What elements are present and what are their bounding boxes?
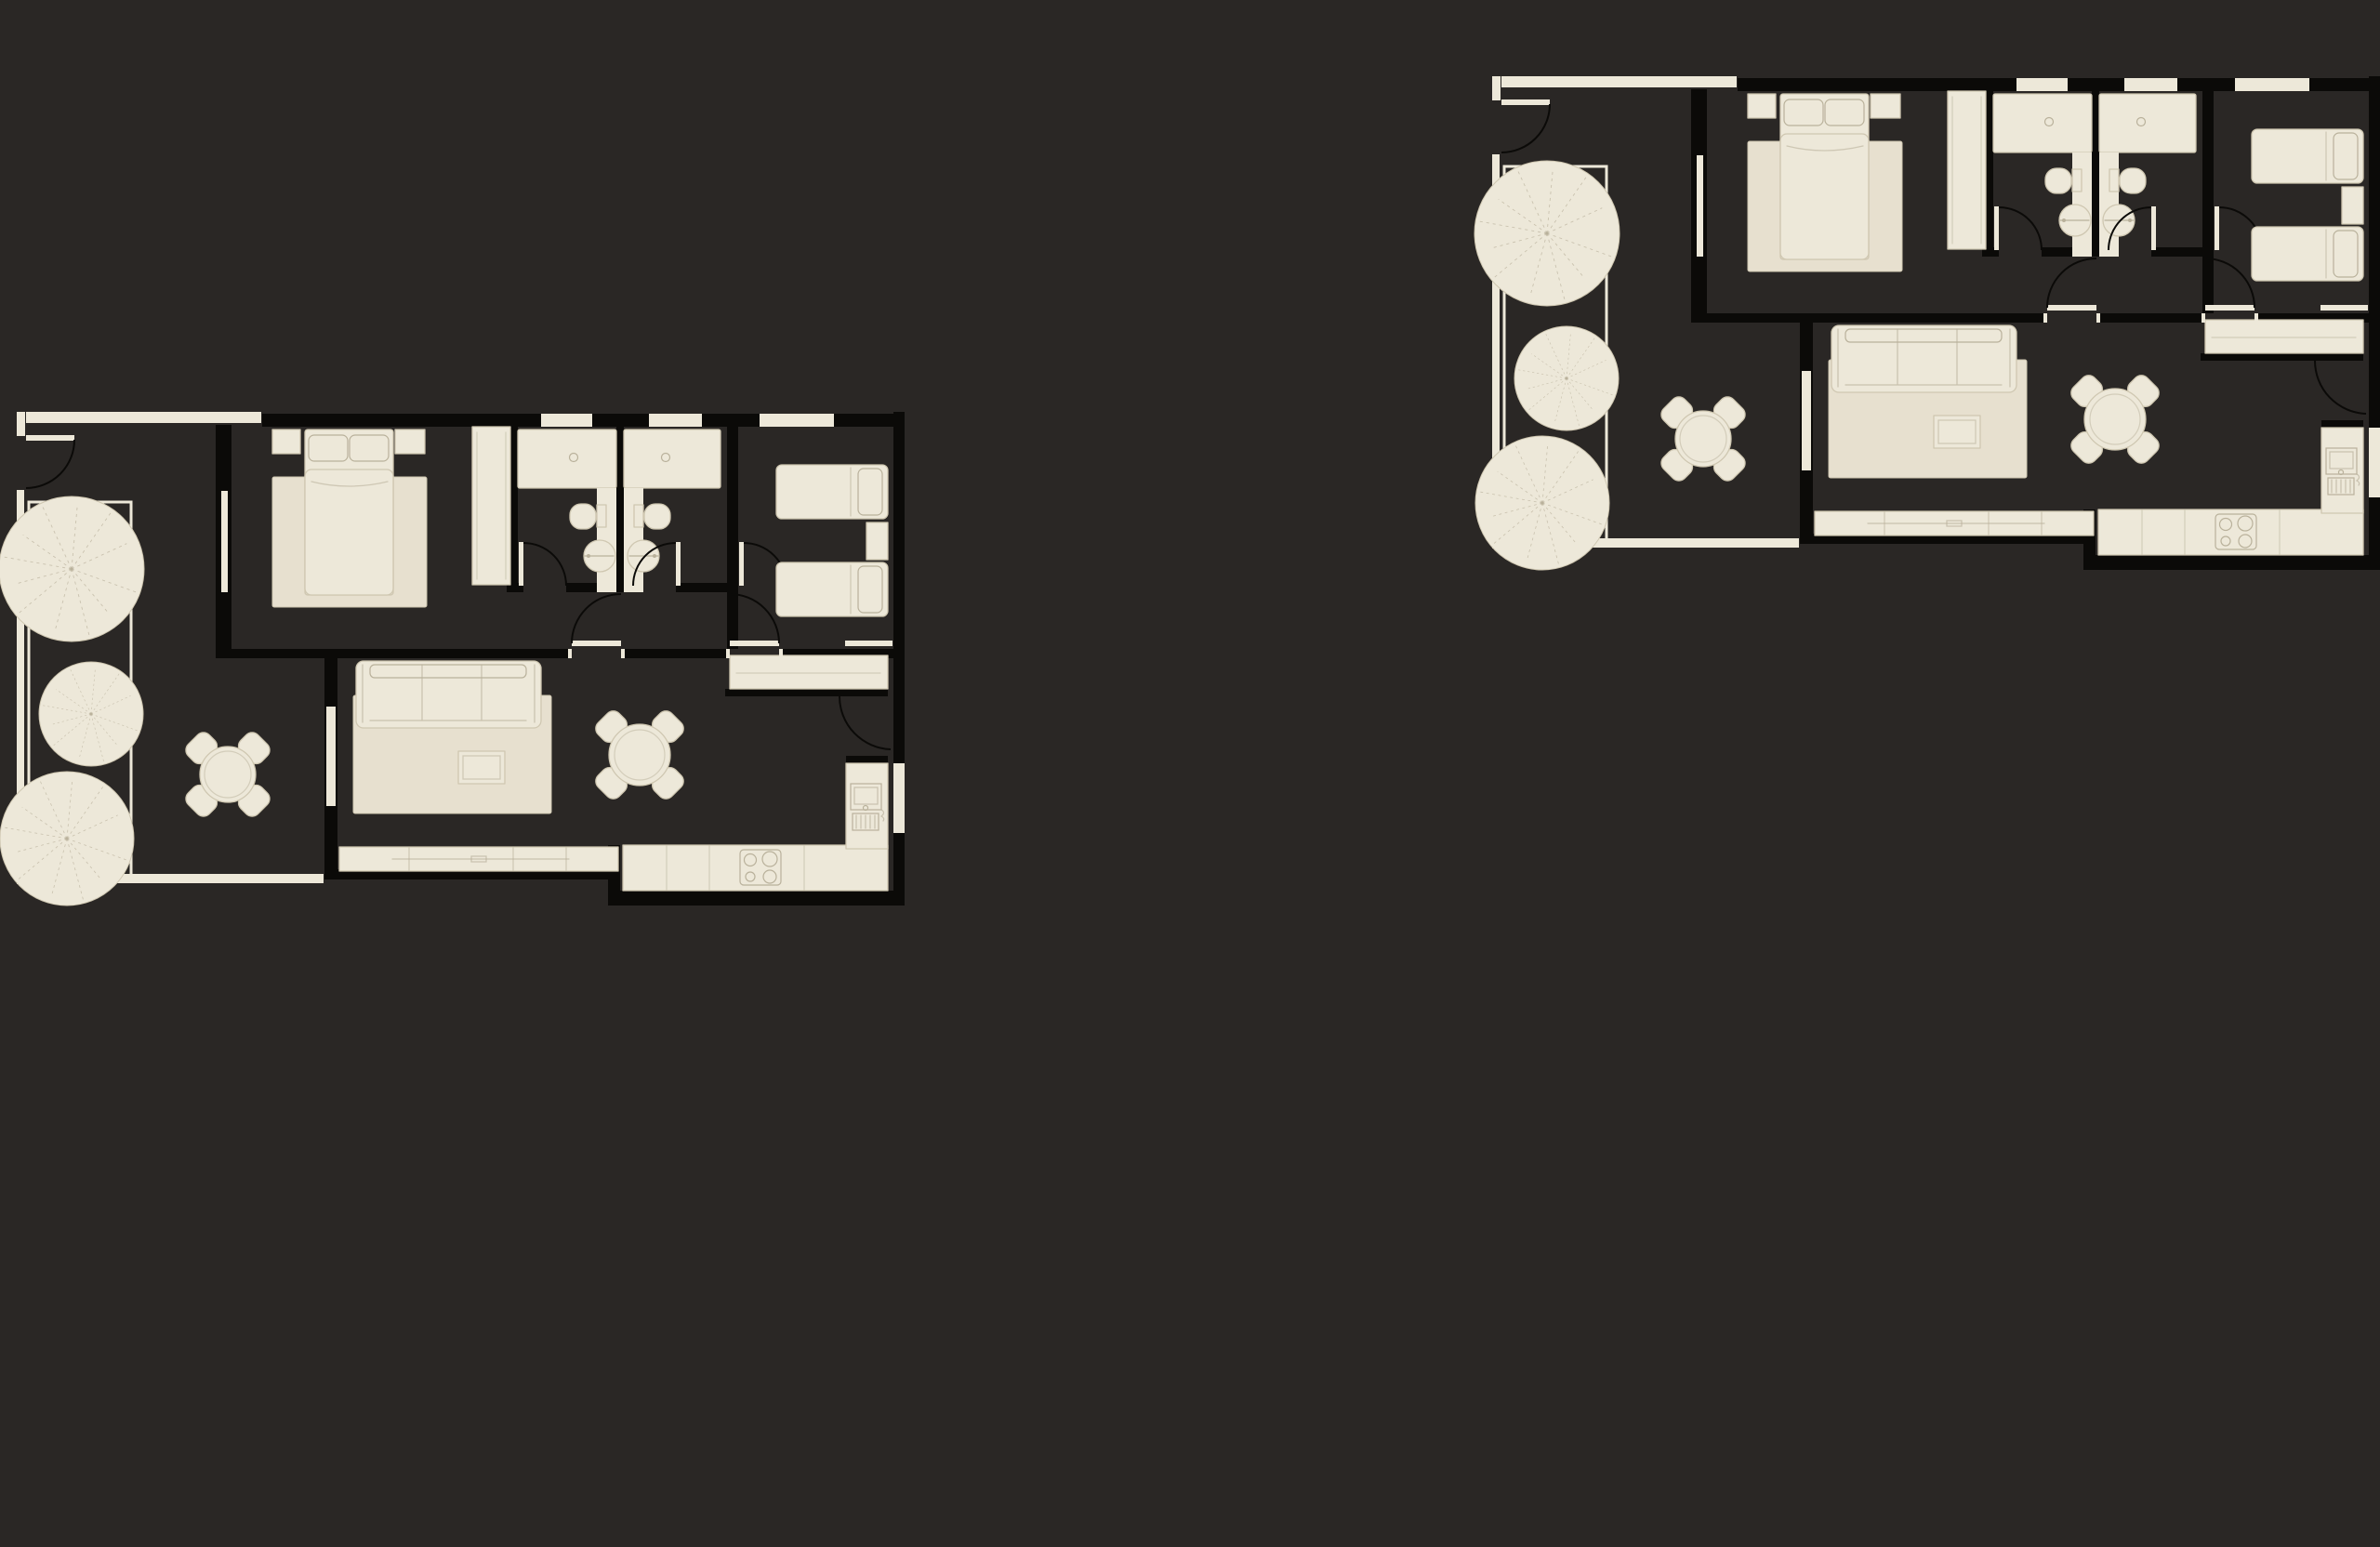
floor-plan-canvas xyxy=(0,0,2380,1547)
floor-plan-unit-b xyxy=(1474,76,2380,570)
floor-plan-unit-a xyxy=(0,412,905,906)
floor-plans-drawing xyxy=(0,0,2380,1547)
units-layer xyxy=(0,76,2380,906)
